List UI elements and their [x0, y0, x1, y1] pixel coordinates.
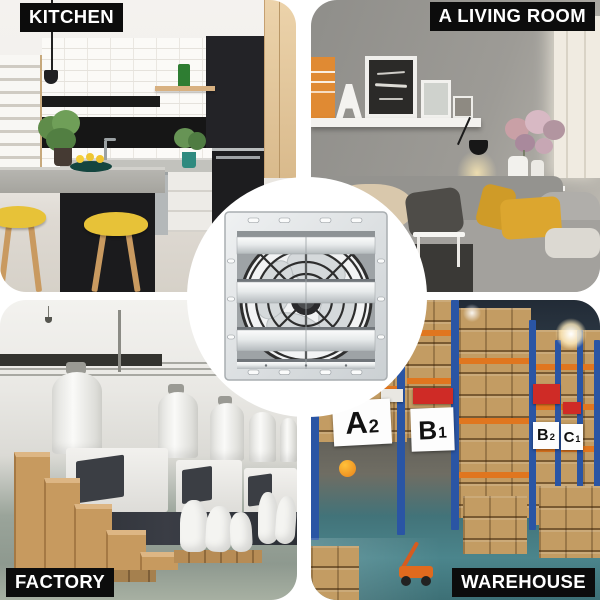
kitchen-wood-cabinet — [264, 0, 296, 178]
kitchen-stool-leg — [28, 224, 42, 292]
kitchen-white-drawers — [168, 172, 212, 232]
application-scenes-collage: A2 B1 B2 C1 — [0, 0, 600, 600]
living-room-orange-poster — [311, 57, 335, 118]
living-room-flowers — [535, 138, 553, 154]
living-room-flowers — [515, 134, 535, 152]
factory-hopper-dryer — [249, 412, 276, 462]
warehouse-rack-sign-c1: C1 — [561, 424, 583, 450]
warehouse-red-banner — [533, 384, 560, 404]
factory-machine-clamp — [76, 455, 124, 504]
factory-hopper-dryer — [52, 372, 102, 454]
louver-shutter — [237, 231, 375, 369]
kitchen-plant-pot — [54, 148, 72, 166]
living-room-throw-blanket — [545, 228, 600, 258]
kitchen-stool-leg — [0, 224, 12, 292]
living-room-picture-ledge — [311, 118, 481, 127]
warehouse-rack-sign-b2: B2 — [533, 422, 559, 449]
warehouse-label: WAREHOUSE — [452, 568, 595, 597]
factory-label: FACTORY — [6, 568, 114, 597]
kitchen-lemon — [86, 153, 94, 161]
living-room-chalk-script — [379, 98, 403, 100]
kitchen-herb-pot — [182, 152, 196, 168]
kitchen-herb-plant — [188, 132, 206, 150]
kitchen-stool-seat — [84, 212, 148, 236]
kitchen-faucet — [104, 141, 107, 160]
factory-hopper-dryer — [210, 403, 244, 461]
kitchen-lemon — [96, 155, 104, 163]
kitchen-louver-window — [0, 55, 44, 170]
kitchen-black-tile-band — [42, 96, 160, 107]
factory-hopper-dryer — [280, 418, 297, 462]
kitchen-black-fridge — [206, 36, 264, 148]
warehouse-rack-beam — [459, 418, 531, 424]
warehouse-ceiling-light — [459, 300, 485, 326]
warehouse-red-banner — [563, 402, 581, 414]
warehouse-orange-lamp — [339, 460, 356, 477]
living-room-flowers — [543, 120, 565, 140]
warehouse-floor-boxes — [463, 496, 527, 554]
kitchen-stool-seat — [0, 206, 46, 228]
shutter-exhaust-fan-product-image — [224, 211, 388, 381]
kitchen-island-base — [60, 193, 155, 292]
factory-material-sack — [180, 500, 208, 552]
warehouse-red-banner — [413, 388, 453, 404]
factory-ceiling-lamp — [45, 317, 52, 323]
kitchen-lemon — [76, 155, 84, 163]
living-room-label: A LIVING ROOM — [430, 2, 595, 31]
warehouse-pallet-jack-wheel — [401, 576, 411, 586]
warehouse-rack-beam — [459, 358, 531, 364]
warehouse-rack-beam — [529, 364, 600, 370]
kitchen-green-canister — [178, 64, 190, 86]
living-room-window — [554, 16, 600, 178]
warehouse-rack-beam — [459, 472, 531, 478]
kitchen-label: KITCHEN — [20, 3, 123, 32]
living-room-table-leg — [457, 237, 460, 267]
warehouse-rack-sign-b1: B1 — [410, 407, 454, 451]
warehouse-floor-boxes — [539, 486, 600, 558]
kitchen-pendant-lamp — [44, 70, 58, 84]
warehouse-cardboard-boxes — [459, 308, 531, 518]
warehouse-floor-boxes — [311, 546, 359, 600]
shutter-exhaust-fan-illustration — [224, 211, 388, 381]
living-room-dark-pillow — [404, 186, 465, 238]
factory-machine-clamp — [182, 466, 212, 504]
living-room-photo-frame — [453, 96, 473, 118]
kitchen-fruit-bowl — [70, 161, 112, 172]
factory-wood-step — [140, 552, 178, 570]
living-room-letter-a-decor — [336, 84, 362, 118]
kitchen-oven-handle — [216, 156, 260, 159]
living-room-photo-frame — [421, 80, 451, 118]
warehouse-pallet-jack-wheel — [421, 576, 431, 586]
kitchen-wood-shelf — [155, 86, 215, 91]
factory-conduit — [118, 310, 121, 372]
kitchen-cabinet-seam — [279, 0, 280, 178]
warehouse-ceiling-light — [549, 312, 593, 356]
